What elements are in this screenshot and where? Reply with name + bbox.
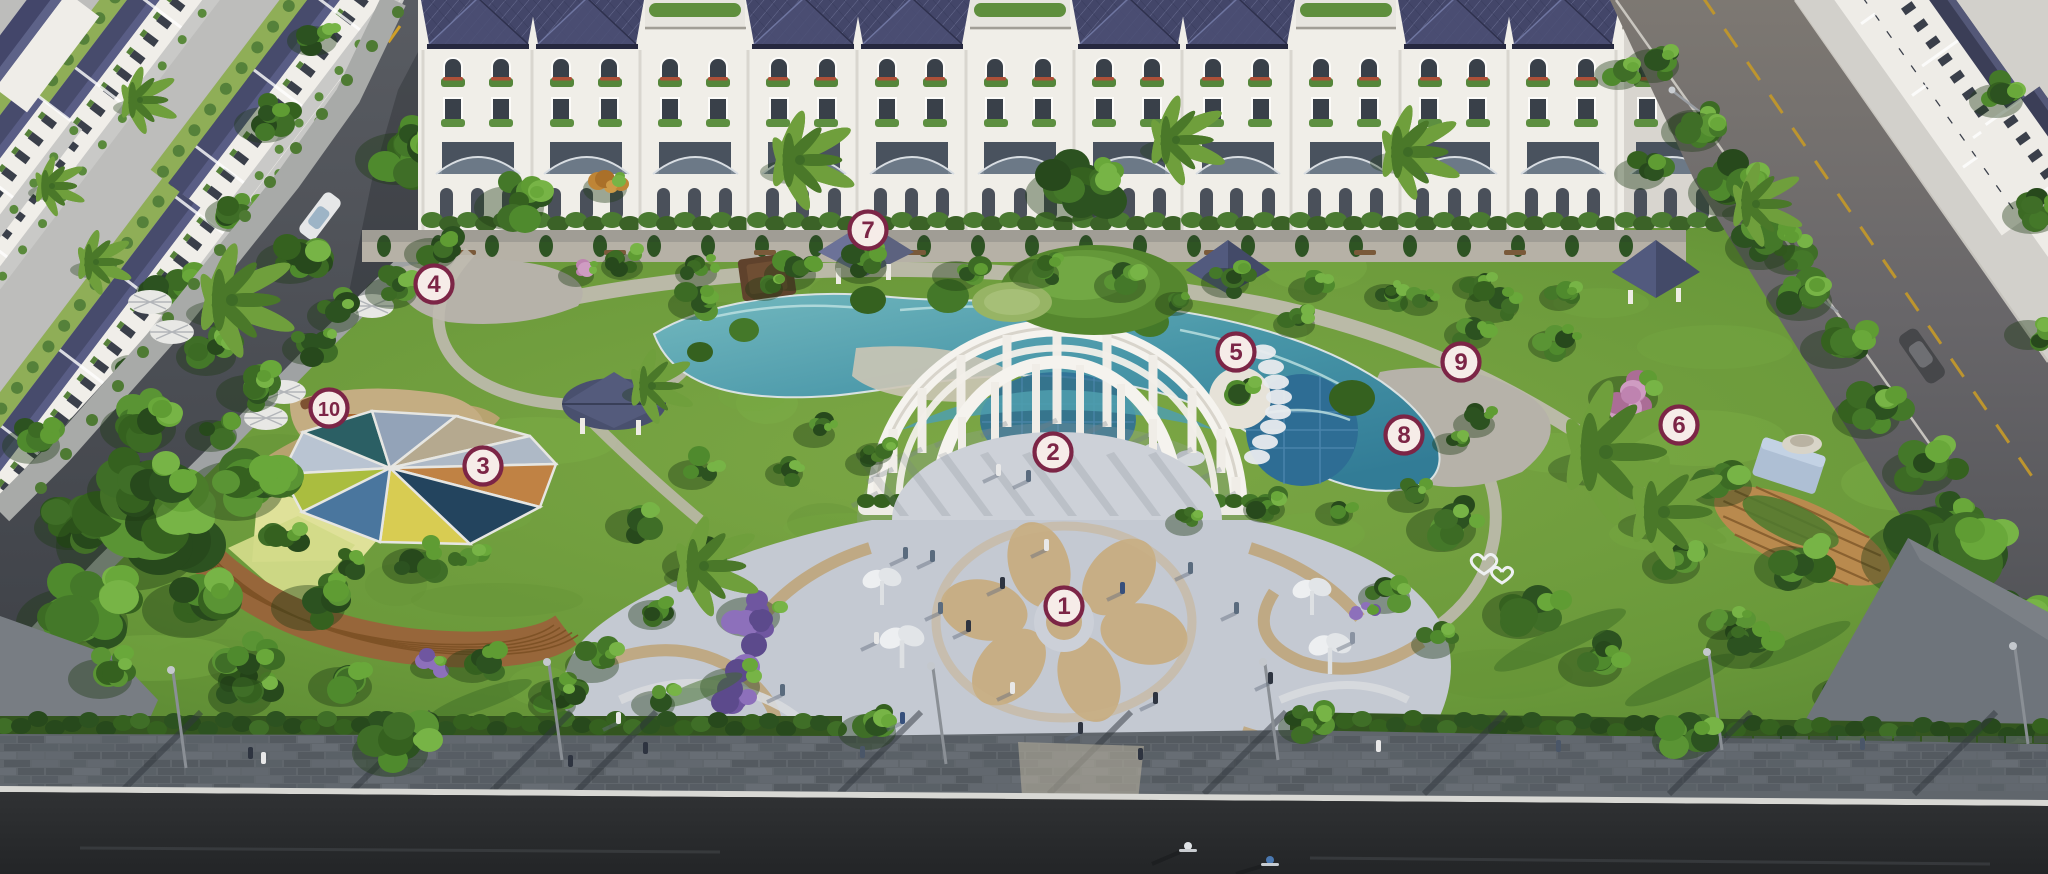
svg-text:5: 5	[1229, 339, 1242, 366]
svg-text:2: 2	[1046, 439, 1059, 466]
svg-text:10: 10	[318, 399, 340, 421]
svg-text:8: 8	[1397, 422, 1410, 449]
svg-text:9: 9	[1454, 349, 1467, 376]
svg-text:1: 1	[1057, 593, 1070, 620]
svg-text:7: 7	[861, 217, 874, 244]
svg-text:6: 6	[1672, 412, 1685, 439]
svg-text:4: 4	[427, 271, 441, 298]
svg-text:3: 3	[476, 453, 489, 480]
